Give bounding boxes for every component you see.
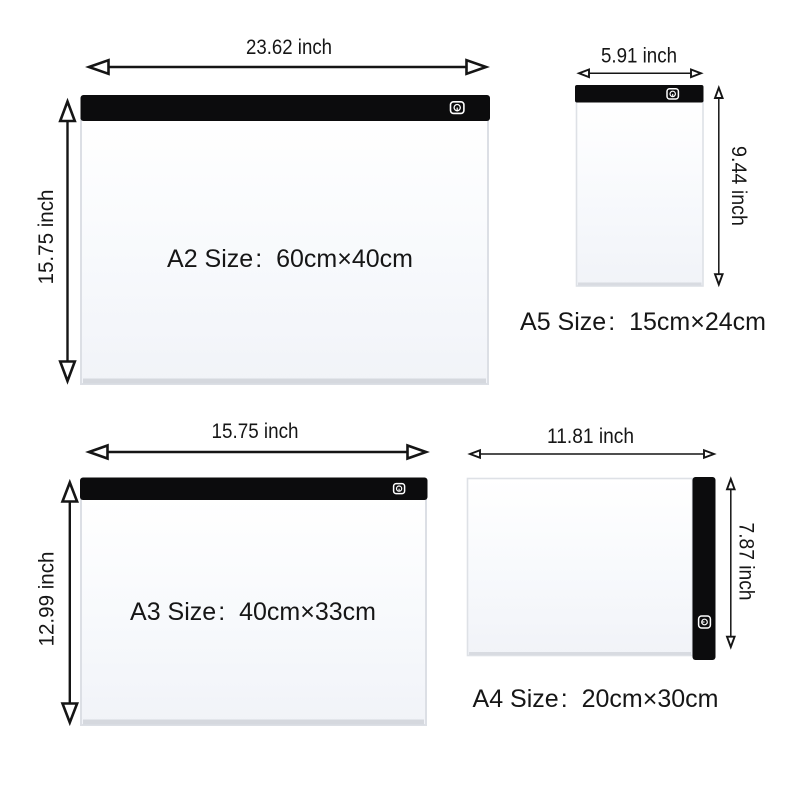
svg-text:15.75 inch: 15.75 inch (34, 190, 58, 285)
svg-text:5.91 inch: 5.91 inch (601, 44, 677, 68)
svg-text:23.62 inch: 23.62 inch (246, 35, 332, 59)
svg-text:A2 Size : 60cm×40cm: A2 Size : 60cm×40cm (167, 245, 413, 273)
svg-text:12.99 inch: 12.99 inch (35, 552, 59, 647)
svg-text:7.87 inch: 7.87 inch (735, 523, 759, 601)
svg-text:11.81 inch: 11.81 inch (547, 424, 634, 448)
svg-text:A3 Size : 40cm×33cm: A3 Size : 40cm×33cm (130, 598, 376, 626)
svg-text:15.75 inch: 15.75 inch (212, 419, 299, 443)
svg-text:A4 Size : 20cm×30cm: A4 Size : 20cm×30cm (473, 685, 719, 713)
svg-text:A5 Size : 15cm×24cm: A5 Size : 15cm×24cm (520, 308, 766, 336)
svg-text:9.44 inch: 9.44 inch (727, 146, 751, 226)
